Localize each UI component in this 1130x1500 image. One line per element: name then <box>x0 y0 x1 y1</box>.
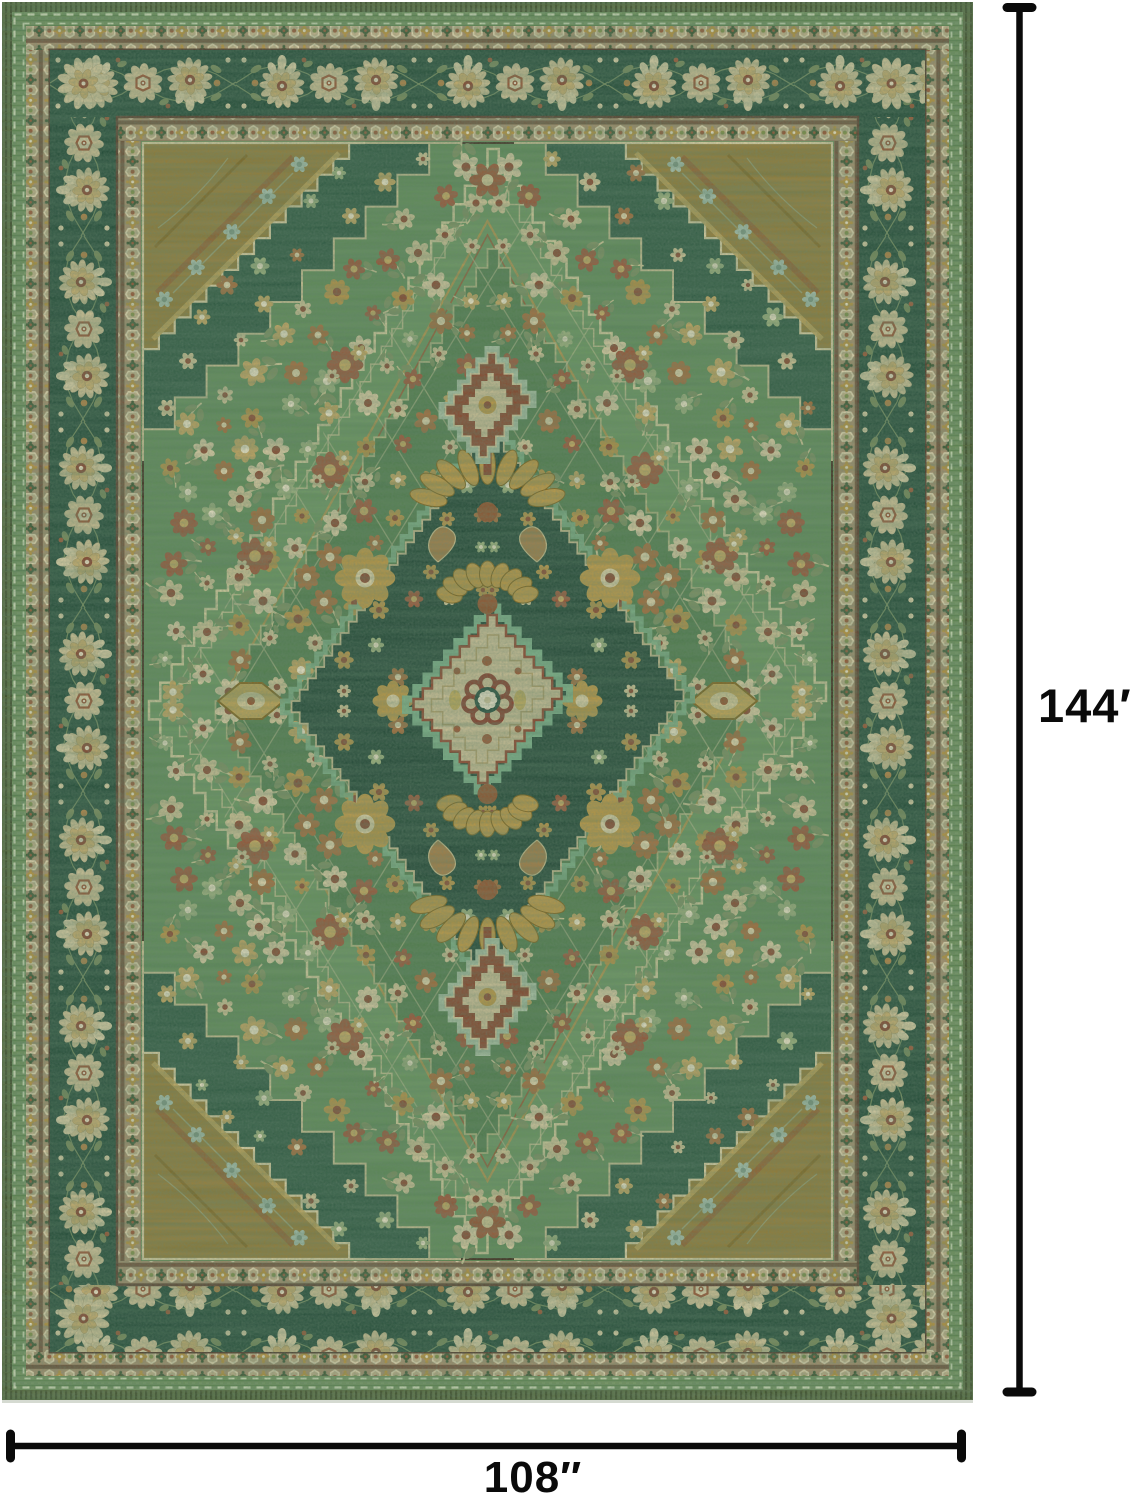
svg-text:108″: 108″ <box>484 1453 583 1500</box>
svg-text:144″: 144″ <box>1038 679 1130 732</box>
